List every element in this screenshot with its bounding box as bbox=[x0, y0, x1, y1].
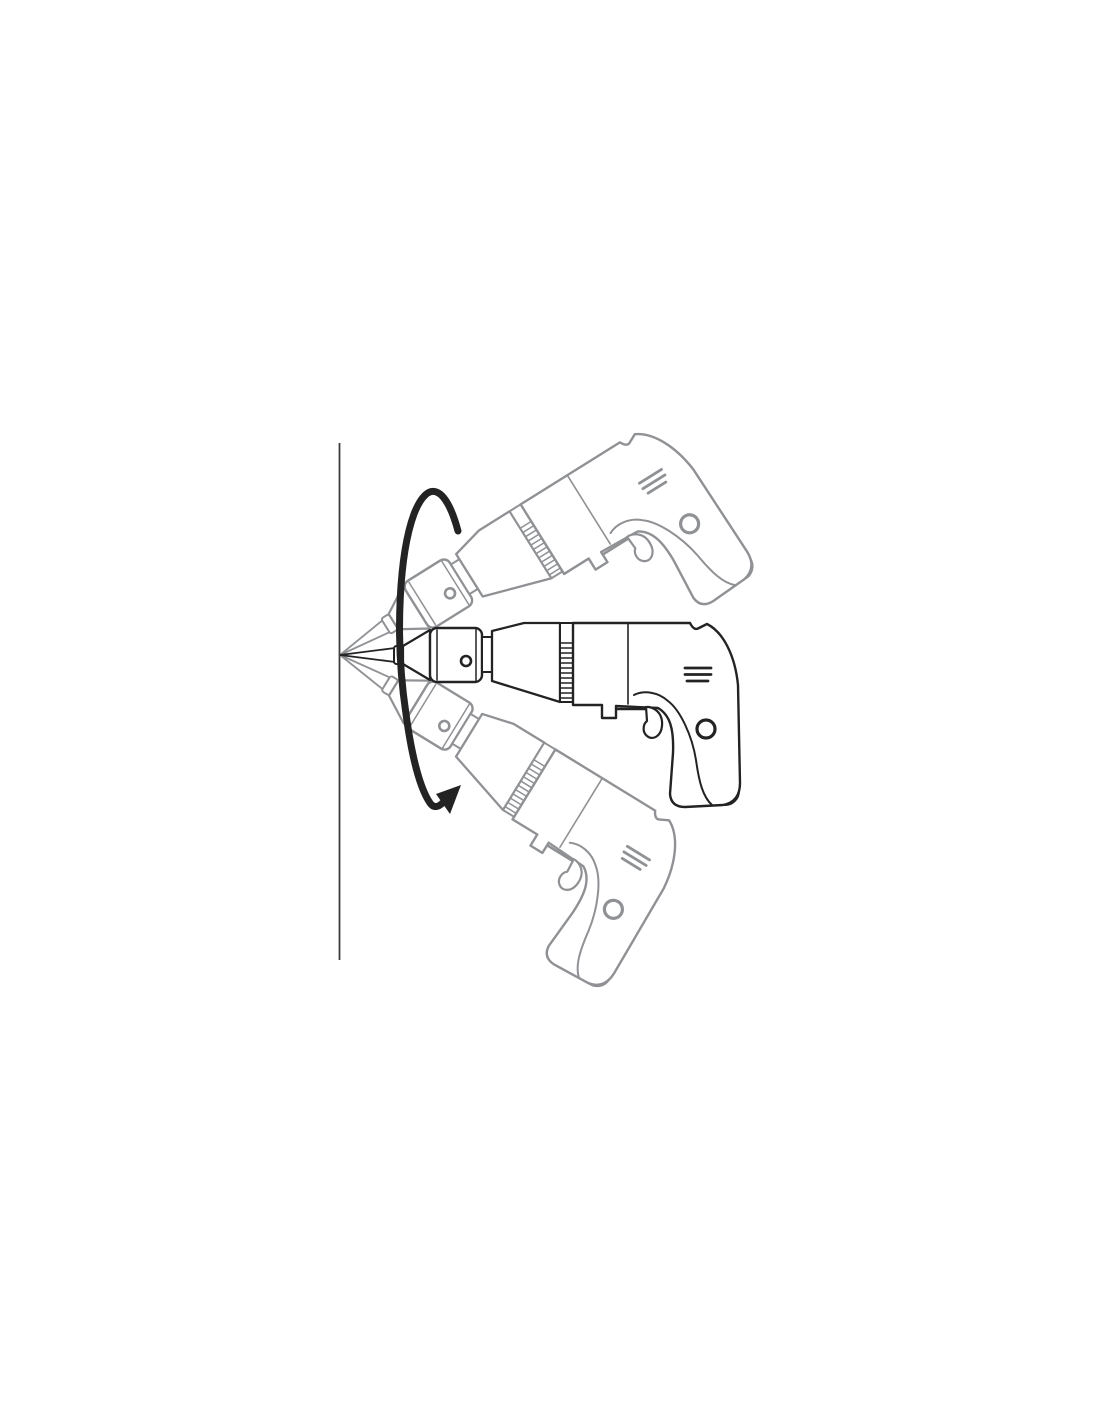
illustration-page bbox=[0, 0, 1100, 1422]
rotation-arrow-head bbox=[436, 785, 461, 814]
drill-angle-diagram bbox=[0, 0, 1100, 1422]
